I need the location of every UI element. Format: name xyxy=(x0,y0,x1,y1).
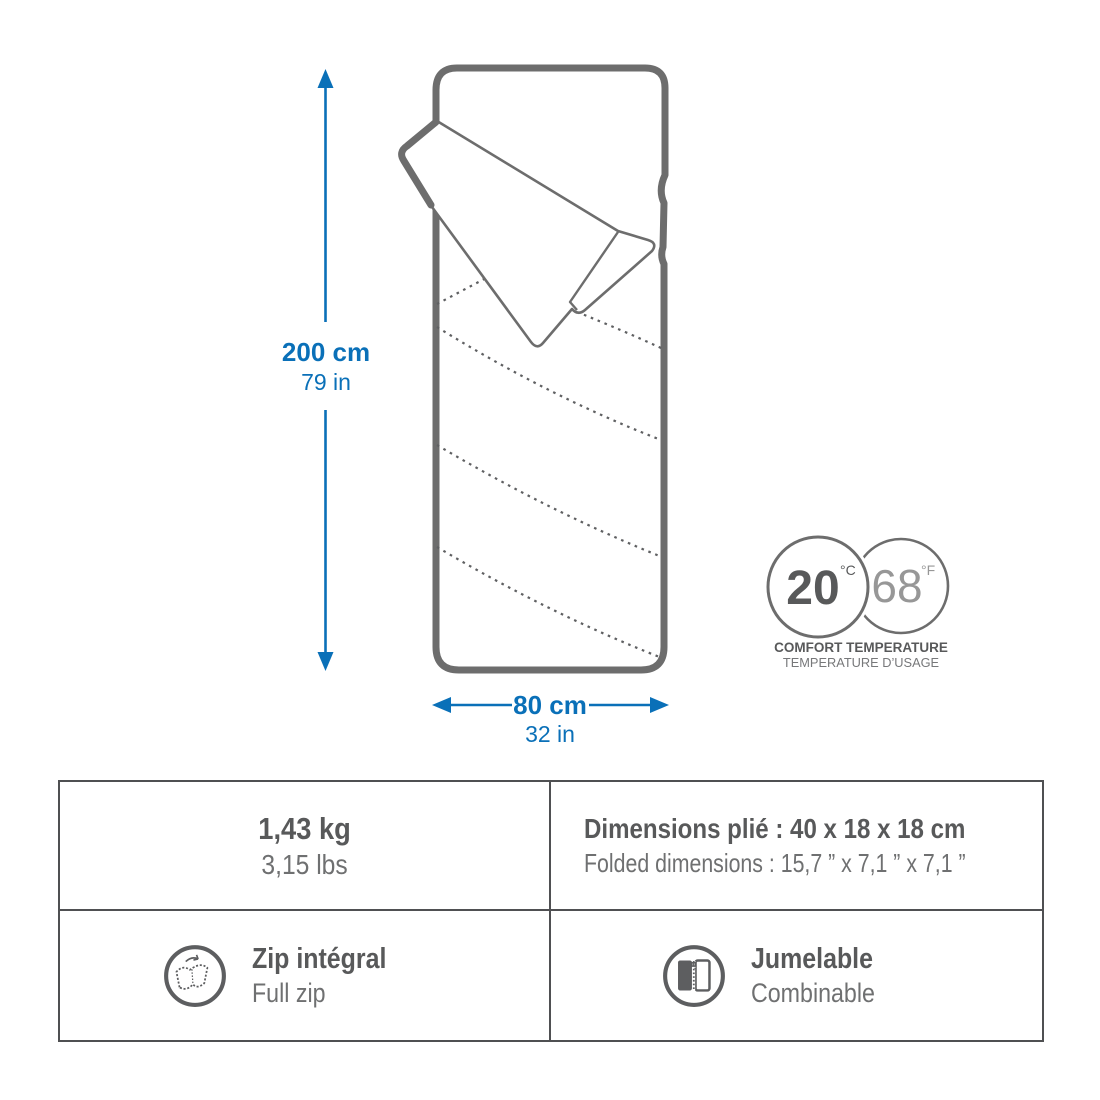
width-arrowhead-left xyxy=(432,697,451,713)
height-imperial-label: 79 in xyxy=(301,369,351,395)
weight-imperial: 3,15 lbs xyxy=(258,848,351,882)
full-zip-cell: Zip intégral Full zip xyxy=(60,911,551,1040)
width-dimension: 80 cm 32 in xyxy=(432,690,669,747)
full-zip-icon xyxy=(162,943,228,1009)
spec-table: 1,43 kg 3,15 lbs Dimensions plié : 40 x … xyxy=(58,780,1044,1042)
full-zip-en: Full zip xyxy=(252,977,386,1010)
fahrenheit-value: 68 xyxy=(871,560,922,612)
height-arrowhead-top xyxy=(318,69,334,88)
fahrenheit-unit: °F xyxy=(921,562,935,578)
temperature-caption-fr: TEMPERATURE D’USAGE xyxy=(783,655,939,670)
product-spec-infographic: 200 cm 79 in 80 cm 32 in 68 °F 20 °C COM… xyxy=(0,0,1100,1100)
pairing-cell: Jumelable Combinable xyxy=(551,911,1042,1040)
weight-metric: 1,43 kg xyxy=(258,810,351,848)
folded-dimensions-cell: Dimensions plié : 40 x 18 x 18 cm Folded… xyxy=(551,782,1042,911)
height-dimension: 200 cm 79 in xyxy=(282,69,370,671)
temperature-badge: 68 °F 20 °C COMFORT TEMPERATURE TEMPERAT… xyxy=(768,537,948,670)
weight-cell: 1,43 kg 3,15 lbs xyxy=(60,782,551,911)
celsius-value: 20 xyxy=(786,562,839,615)
pairing-en: Combinable xyxy=(751,977,875,1010)
full-zip-fr: Zip intégral xyxy=(252,941,386,977)
folded-dimensions-en: Folded dimensions : 15,7 ” x 7,1 ” x 7,1… xyxy=(584,847,966,880)
folded-dimensions-fr: Dimensions plié : 40 x 18 x 18 cm xyxy=(584,811,984,847)
temperature-caption-en: COMFORT TEMPERATURE xyxy=(774,640,948,655)
size-diagram: 200 cm 79 in 80 cm 32 in 68 °F 20 °C COM… xyxy=(0,0,1100,760)
width-metric-label: 80 cm xyxy=(513,690,587,720)
width-arrowhead-right xyxy=(650,697,669,713)
width-imperial-label: 32 in xyxy=(525,721,575,747)
height-metric-label: 200 cm xyxy=(282,337,370,367)
height-arrowhead-bottom xyxy=(318,652,334,671)
pairing-fr: Jumelable xyxy=(751,941,875,977)
celsius-unit: °C xyxy=(840,562,856,578)
zip-together-icon xyxy=(661,943,727,1009)
